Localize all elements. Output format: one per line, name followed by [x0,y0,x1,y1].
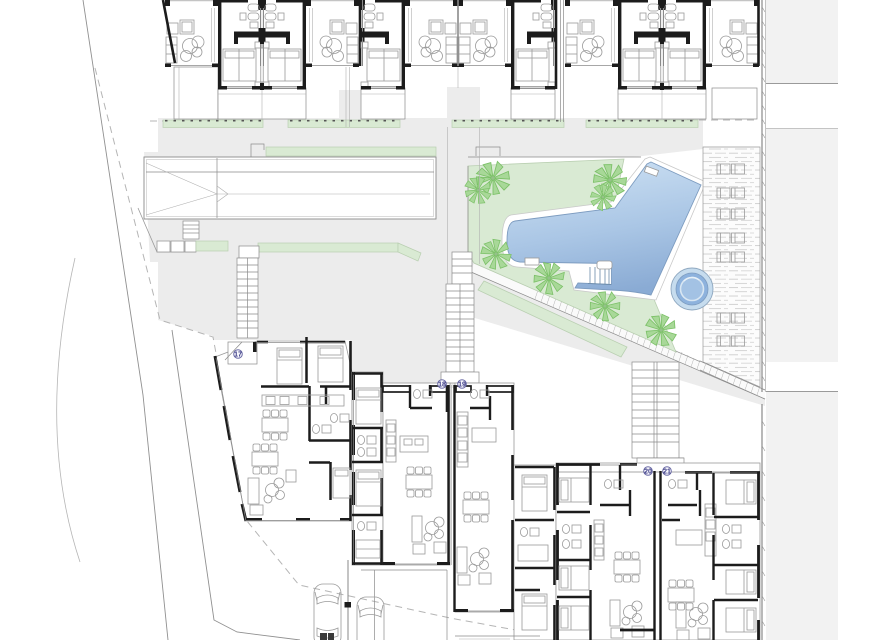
svg-text:17: 17 [234,352,242,359]
svg-text:20: 20 [644,469,652,476]
svg-text:18: 18 [438,382,446,389]
svg-text:21: 21 [663,469,671,476]
svg-text:19: 19 [458,382,466,389]
